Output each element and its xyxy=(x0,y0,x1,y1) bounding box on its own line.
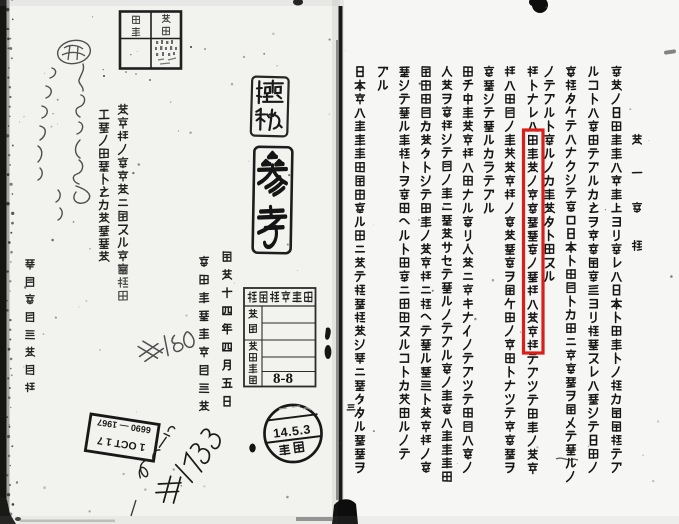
svg-text:8-8: 8-8 xyxy=(273,371,293,387)
